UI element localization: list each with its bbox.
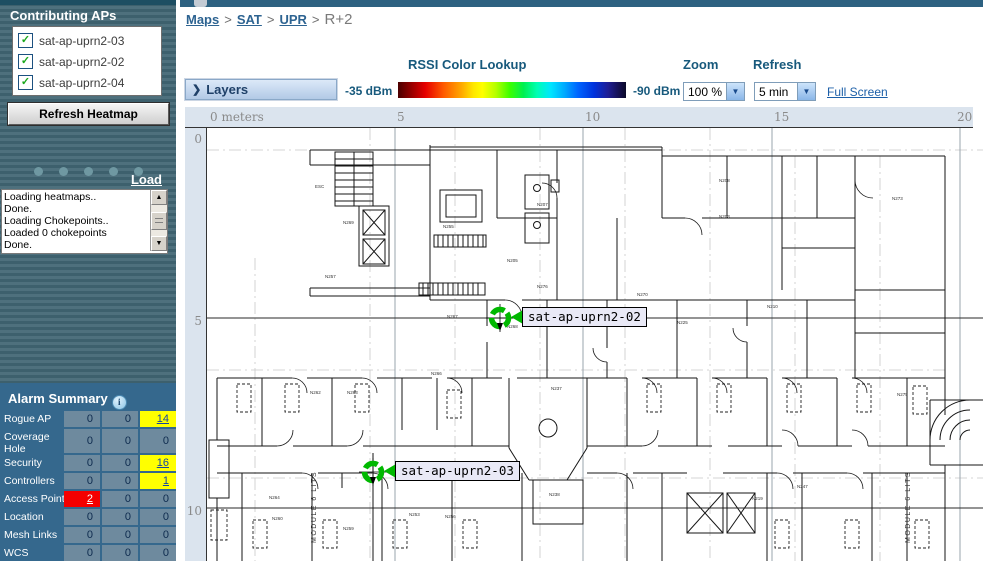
ruler-corner: [185, 107, 207, 128]
ap-label-text: sat-ap-uprn2-03: [39, 34, 124, 48]
contributing-ap-row: ✓sat-ap-uprn2-04: [18, 72, 161, 93]
sidebar: Contributing APs ✓sat-ap-uprn2-03✓sat-ap…: [0, 0, 176, 561]
scroll-up-icon[interactable]: ▲: [151, 190, 167, 205]
alarm-count-cell: 0: [64, 545, 100, 561]
status-line: Done.: [4, 203, 149, 215]
refresh-label: Refresh: [753, 57, 801, 72]
breadcrumb: Maps>SAT>UPR>R+2: [186, 11, 352, 28]
alarm-count-cell: 0: [102, 455, 138, 471]
alarm-row-label: Security: [4, 455, 62, 471]
room-label: N256: [445, 514, 456, 519]
room-label: N207: [537, 202, 548, 207]
alarm-count-cell[interactable]: 14: [140, 411, 176, 427]
alarm-row: Security0016: [4, 455, 176, 471]
ap-checkbox[interactable]: ✓: [18, 33, 33, 48]
room-label: N266: [431, 371, 442, 376]
alarm-count-cell: 0: [140, 429, 176, 453]
room-label: N263: [347, 390, 358, 395]
room-label: N270: [637, 292, 648, 297]
alarm-summary-table: Rogue AP0014Coverage Hole000Security0016…: [4, 411, 176, 561]
ap-name-text: sat-ap-uprn2-03: [395, 461, 520, 481]
alarm-count-cell[interactable]: 16: [140, 455, 176, 471]
collapse-tab-icon[interactable]: [194, 0, 207, 7]
room-label: ESC: [315, 184, 325, 189]
scroll-thumb[interactable]: [151, 212, 167, 230]
alarm-count-cell: 0: [140, 509, 176, 525]
alarm-count-cell: 0: [140, 491, 176, 507]
status-scrollbar[interactable]: ▲ ▼: [150, 190, 167, 251]
breadcrumb-current: R+2: [325, 11, 353, 28]
alarm-row-label: WCS: [4, 545, 62, 561]
refresh-select[interactable]: 5 min ▼: [754, 82, 816, 101]
breadcrumb-link-sat[interactable]: SAT: [237, 12, 262, 27]
status-log-lines: Loading heatmaps..Done.Loading Chokepoin…: [4, 191, 149, 251]
layers-button[interactable]: ❯ Layers: [185, 79, 337, 100]
alarm-count-cell: 0: [64, 411, 100, 427]
alarm-row: Controllers001: [4, 473, 176, 489]
ap-checkbox[interactable]: ✓: [18, 54, 33, 69]
status-line: Loading heatmaps..: [4, 191, 149, 203]
status-line: Done.: [4, 239, 149, 251]
alarm-row-label: Controllers: [4, 473, 62, 489]
room-label: N255: [443, 224, 454, 229]
alarm-row: WCS000: [4, 545, 176, 561]
room-label: N269: [343, 220, 354, 225]
alarm-count-cell: 0: [102, 545, 138, 561]
alarm-count-cell[interactable]: 1: [140, 473, 176, 489]
horizontal-ruler: 0 meters 5 10 15 20: [207, 107, 973, 128]
vertical-ruler: 0 5 10: [185, 128, 207, 561]
alarm-count-cell: 0: [102, 411, 138, 427]
room-label: N253: [409, 512, 420, 517]
ap-label-text: sat-ap-uprn2-04: [39, 76, 124, 90]
room-label: N259: [343, 526, 354, 531]
floorplan-drawing: ESCN269N255N257N205N207N208N203N273N270N…: [207, 128, 983, 561]
zoom-select[interactable]: 100 % ▼: [683, 82, 745, 101]
alarm-summary-panel: Alarm Summaryi Rogue AP0014Coverage Hole…: [0, 383, 176, 561]
rssi-min-label: -35 dBm: [345, 84, 392, 98]
alarm-count-cell: 0: [102, 527, 138, 543]
contributing-ap-row: ✓sat-ap-uprn2-03: [18, 30, 161, 51]
scroll-down-icon[interactable]: ▼: [151, 236, 167, 251]
contributing-ap-row: ✓sat-ap-uprn2-02: [18, 51, 161, 72]
chevron-down-icon[interactable]: ▼: [797, 83, 815, 100]
alarm-row: Access Points200: [4, 491, 176, 507]
room-label: N273: [892, 196, 903, 201]
room-label: N275: [897, 392, 908, 397]
rssi-gradient-bar: [398, 82, 626, 98]
refresh-heatmap-button[interactable]: Refresh Heatmap: [8, 103, 169, 125]
breadcrumb-link-upr[interactable]: UPR: [279, 12, 306, 27]
room-label: N225: [677, 320, 688, 325]
alarm-row-label: Access Points: [4, 491, 62, 507]
room-label: N260: [272, 516, 283, 521]
alarm-row: Location000: [4, 509, 176, 525]
progress-dot: [84, 167, 93, 176]
room-label: N247: [797, 484, 808, 489]
ap-name-text: sat-ap-uprn2-02: [522, 307, 647, 327]
progress-dot: [109, 167, 118, 176]
alarm-row-label: Coverage Hole: [4, 429, 62, 453]
rssi-lookup-title: RSSI Color Lookup: [408, 57, 526, 72]
alarm-count-cell: 0: [102, 509, 138, 525]
alarm-count-cell: 0: [140, 527, 176, 543]
progress-dot: [34, 167, 43, 176]
ap-checkbox[interactable]: ✓: [18, 75, 33, 90]
alarm-row-label: Rogue AP: [4, 411, 62, 427]
status-log-box: Loading heatmaps..Done.Loading Chokepoin…: [1, 189, 168, 254]
room-label: MODULE 6 LITS: [311, 471, 318, 543]
contributing-aps-title: Contributing APs: [10, 8, 116, 23]
breadcrumb-link-maps[interactable]: Maps: [186, 12, 219, 27]
alarm-count-cell: 0: [64, 429, 100, 453]
ap-label[interactable]: sat-ap-uprn2-02: [511, 307, 647, 327]
alarm-row: Coverage Hole000: [4, 429, 176, 453]
floorplan-map[interactable]: ESCN269N255N257N205N207N208N203N273N270N…: [207, 128, 983, 561]
alarm-count-cell: 0: [64, 455, 100, 471]
room-label: N257: [325, 274, 336, 279]
status-line: Loaded 0 chokepoints: [4, 227, 149, 239]
main-top-bar: [180, 0, 983, 7]
info-icon[interactable]: i: [112, 395, 127, 410]
alarm-summary-title: Alarm Summaryi: [8, 391, 127, 410]
ap-marker[interactable]: [359, 458, 387, 486]
ap-label-text: sat-ap-uprn2-02: [39, 55, 124, 69]
room-label: N238: [549, 492, 560, 497]
alarm-count-cell: 0: [64, 509, 100, 525]
rssi-max-label: -90 dBm: [633, 84, 680, 98]
wcs-heatmap-page: Contributing APs ✓sat-ap-uprn2-03✓sat-ap…: [0, 0, 983, 561]
fullscreen-link[interactable]: Full Screen: [827, 85, 888, 99]
ap-label[interactable]: sat-ap-uprn2-03: [384, 461, 520, 481]
alarm-count-cell: 0: [140, 545, 176, 561]
alarm-row: Mesh Links000: [4, 527, 176, 543]
alarm-count-cell: 0: [102, 473, 138, 489]
chevron-down-icon[interactable]: ▼: [726, 83, 744, 100]
progress-dot: [59, 167, 68, 176]
alarm-row: Rogue AP0014: [4, 411, 176, 427]
sidebar-top-strip: [0, 0, 176, 5]
load-link[interactable]: Load: [131, 172, 162, 187]
room-label: N205: [507, 258, 518, 263]
alarm-count-cell: 0: [102, 491, 138, 507]
room-label: N267: [447, 314, 458, 319]
room-label: N219: [752, 496, 763, 501]
contributing-aps-list: ✓sat-ap-uprn2-03✓sat-ap-uprn2-02✓sat-ap-…: [12, 26, 162, 96]
room-label: N276: [537, 284, 548, 289]
alarm-count-cell: 0: [64, 473, 100, 489]
room-label: N262: [310, 390, 321, 395]
alarm-row-label: Location: [4, 509, 62, 525]
room-label: MODULE 6 LITS: [905, 471, 912, 543]
room-label: N203: [719, 214, 730, 219]
room-label: N208: [719, 178, 730, 183]
room-label: N264: [269, 495, 280, 500]
chevron-right-icon: ❯: [192, 83, 201, 96]
room-label: N237: [551, 386, 562, 391]
alarm-count-cell: 0: [64, 527, 100, 543]
alarm-count-cell: 0: [102, 429, 138, 453]
room-label: N210: [767, 304, 778, 309]
status-line: Loading Chokepoints..: [4, 215, 149, 227]
zoom-label: Zoom: [683, 57, 718, 72]
alarm-count-cell[interactable]: 2: [64, 491, 100, 507]
alarm-row-label: Mesh Links: [4, 527, 62, 543]
